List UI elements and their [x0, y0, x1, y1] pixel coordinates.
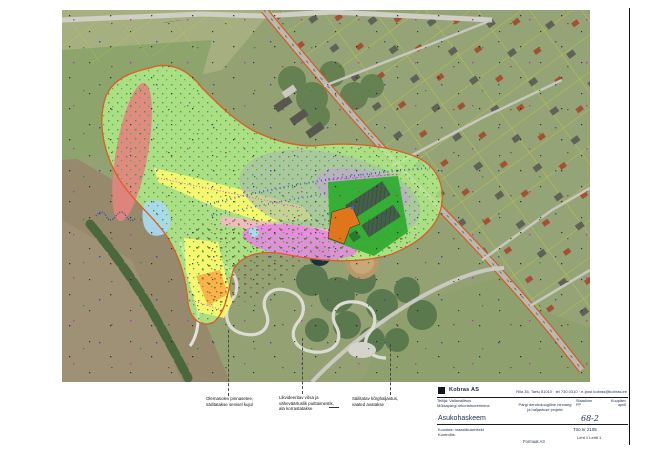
leader-line: [302, 338, 303, 394]
stage-value: PP: [576, 403, 592, 407]
authors-cell: Koostas: maastikuarhitekt Kontrollis:: [438, 427, 484, 437]
company-logo-icon: [438, 387, 445, 394]
company-name: Kobras AS: [449, 387, 479, 393]
note-line: säilitatakse senisel kujul: [206, 402, 270, 408]
stage-field: Staadium PP: [576, 399, 592, 407]
title-block-main-row: Tellija: Vallavalitsus Mõisapargi rekons…: [437, 398, 628, 425]
note-line: ala korrastatakse: [279, 406, 337, 412]
site-plan-map: ···········: [62, 10, 590, 382]
sheet-code: 68-2: [581, 414, 599, 423]
project-cell: Tellija: Vallavalitsus Mõisapargi rekons…: [437, 398, 517, 424]
map-note-3: Säilitatav kõrghaljastus, vaated avataks…: [352, 396, 416, 407]
format-note: Formaat A3: [523, 439, 545, 444]
note-line: vaated avatakse: [352, 402, 416, 408]
page-edge-line: [629, 8, 630, 445]
lehti-value: 1: [599, 435, 601, 440]
work-number-field: Töö nr 2105: [573, 427, 597, 432]
subtitle-line: ja haljastuse projekt: [517, 407, 573, 412]
date-value: aprill: [611, 403, 626, 407]
leht-value: 1: [586, 435, 588, 440]
work-number-label: Töö nr: [573, 427, 586, 432]
lehti-label: Lehti: [589, 435, 598, 440]
drawing-title: Asukohaskeem: [438, 415, 486, 422]
company-contact: Riia 35, Tartu 51010 · tel 730 0310 · e-…: [516, 389, 627, 394]
title-block: Kobras AS Riia 35, Tartu 51010 · tel 730…: [437, 385, 628, 445]
title-block-footer-row: Koostas: maastikuarhitekt Kontrollis: Tö…: [437, 425, 628, 445]
project-line: Mõisapargi rekonstrueerimine: [437, 403, 517, 408]
sheet-count-field: Leht 1 Lehti 1: [577, 435, 601, 440]
date-field: Kuupäev aprill: [611, 399, 626, 407]
drawing-sheet: ··········· Olemasolev pinnasetee, säili…: [0, 0, 650, 459]
map-note-2: Likvideeritav võsa ja väheväärtuslik pui…: [279, 395, 337, 412]
sheet-info-cell: Staadium PP Kuupäev aprill 68-2: [573, 398, 628, 424]
author-line: Kontrollis:: [438, 432, 484, 437]
leht-label: Leht: [577, 435, 585, 440]
leader-line: [390, 344, 391, 395]
work-number-value: 2105: [587, 427, 597, 432]
drawing-subtitle-cell: Pargi dendroloogiline hinnang ja haljast…: [517, 398, 573, 424]
title-block-header-row: Kobras AS Riia 35, Tartu 51010 · tel 730…: [437, 385, 628, 398]
leader-line: [228, 330, 229, 396]
map-note-1: Olemasolev pinnasetee, säilitatakse seni…: [206, 396, 270, 407]
